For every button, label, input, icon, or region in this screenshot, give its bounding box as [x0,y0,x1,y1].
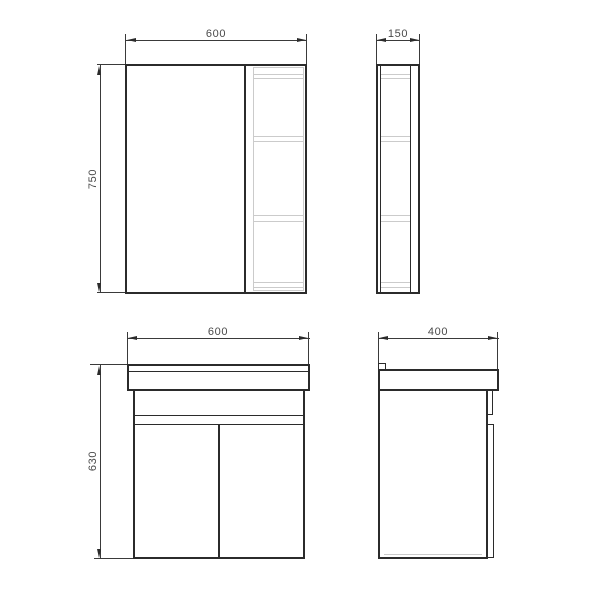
shelf-board [381,215,410,222]
front-panel-line [380,64,381,294]
dimension-line [378,338,499,339]
washbasin-rim-line [127,371,310,372]
shelf-board [253,215,304,222]
top-rail-edge [486,389,493,415]
arrowhead-up [97,66,101,75]
dimension-label: 150 [369,28,427,40]
door-edge [486,424,494,558]
dimension-label: 600 [125,28,307,40]
shelf-board [381,74,410,79]
shelf-board [253,282,304,288]
mirror-door-divider [244,64,246,294]
shelf-board [253,136,304,142]
dimension-line [125,40,307,41]
dimension-value: 630 [87,451,99,471]
dimension-value: 400 [428,326,448,338]
bottom-inset-line [384,554,482,555]
washbasin-side [378,369,499,391]
top-rail-line [133,415,306,416]
dimension-value: 750 [87,169,99,189]
arrowhead-down [97,549,101,558]
dimension-label: 600 [127,326,310,338]
dimension-line [127,338,310,339]
washbasin-front [127,364,310,391]
shelf-board [381,136,410,142]
arrowhead-up [97,366,101,375]
dimension-line [100,365,101,558]
dimension-line [100,65,101,292]
extension-line [97,292,126,293]
vanity-side-body [378,389,488,559]
shelf-board [253,74,304,79]
door-split-line [218,425,220,560]
dimension-value: 600 [206,28,226,40]
dimension-value: 600 [208,326,228,338]
side-outline [376,64,421,294]
extension-line [90,364,127,365]
dimension-label: 630 [87,446,99,476]
dimension-label: 750 [87,164,99,194]
dimension-value: 150 [388,28,408,40]
shelf-frame [253,67,304,291]
back-panel-line [410,64,411,294]
shelf-board [381,282,410,288]
arrowhead-down [97,283,101,292]
technical-drawing-canvas: 600 750 [0,0,600,600]
dimension-label: 400 [378,326,499,338]
